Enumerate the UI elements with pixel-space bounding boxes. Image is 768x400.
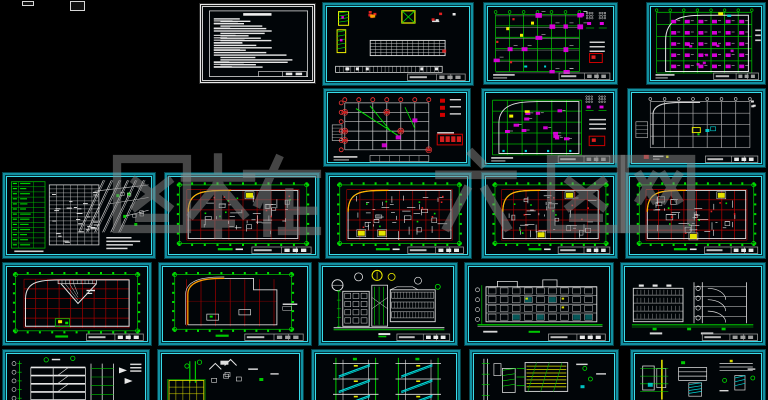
sheet-drawing-wall-detail: [474, 354, 616, 400]
sheet-roof-plan-1: [2, 262, 152, 346]
sheet-stair-section: [311, 349, 461, 400]
sheet-struct-plan-3: [481, 88, 618, 168]
sheet-drawing-rebar-details: [327, 7, 471, 83]
sheet-rebar-details: [322, 2, 474, 86]
sheet-elevation-3: [620, 262, 766, 346]
sheet-drawing-struct-plan-1: [488, 7, 615, 82]
sheet-drawing-stair-section: [316, 354, 458, 400]
sheet-drawing-floor-plan-2: [330, 177, 469, 256]
sheet-drawing-section-1: [7, 354, 147, 400]
sheet-section-1: [2, 349, 150, 400]
sheet-struct-plan-2: [646, 2, 766, 85]
sheet-drawing-node-details: [635, 354, 763, 400]
sheet-drawing-elevation-1: [323, 267, 455, 343]
sheet-site-plan-sheet: [2, 172, 156, 259]
sheet-drawing-floor-plan-4: [630, 177, 763, 256]
sheet-drawing-roof-plan-2: [163, 267, 309, 343]
sheet-node-details: [630, 349, 766, 400]
sheet-foundation-plan: [323, 88, 471, 167]
sheet-drawing-elevation-2: [469, 267, 611, 343]
sheet-drawing-struct-plan-4: [632, 93, 763, 165]
sheet-drawing-roof-plan-1: [7, 267, 149, 343]
sheet-drawing-floor-plan-1: [169, 177, 317, 256]
cad-preview-stage: [0, 0, 768, 400]
sheet-drawing-general-notes: [204, 8, 313, 81]
sheet-drawing-struct-plan-3: [486, 93, 615, 165]
sheet-wall-detail: [469, 349, 619, 400]
sheet-floor-plan-1: [164, 172, 320, 259]
sheet-struct-plan-4: [627, 88, 766, 168]
sheet-drawing-struct-plan-2: [651, 7, 763, 82]
sheet-general-notes: [199, 3, 316, 84]
cutoff-sheet-fragment-2: [70, 1, 85, 11]
sheet-drawing-floor-plan-3: [486, 177, 615, 256]
sheet-elevation-1: [318, 262, 458, 346]
sheet-floor-plan-4: [625, 172, 766, 259]
sheet-elevation-2: [464, 262, 614, 346]
cutoff-sheet-fragment-1: [22, 1, 34, 6]
sheet-struct-plan-1: [483, 2, 618, 85]
sheet-stair-detail: [157, 349, 304, 400]
sheet-drawing-stair-detail: [162, 354, 301, 400]
sheet-drawing-site-plan-sheet: [7, 177, 153, 256]
sheet-floor-plan-2: [325, 172, 472, 259]
sheet-floor-plan-3: [481, 172, 618, 259]
sheet-roof-plan-2: [158, 262, 312, 346]
sheet-drawing-elevation-3: [625, 267, 763, 343]
sheet-drawing-foundation-plan: [328, 93, 468, 164]
